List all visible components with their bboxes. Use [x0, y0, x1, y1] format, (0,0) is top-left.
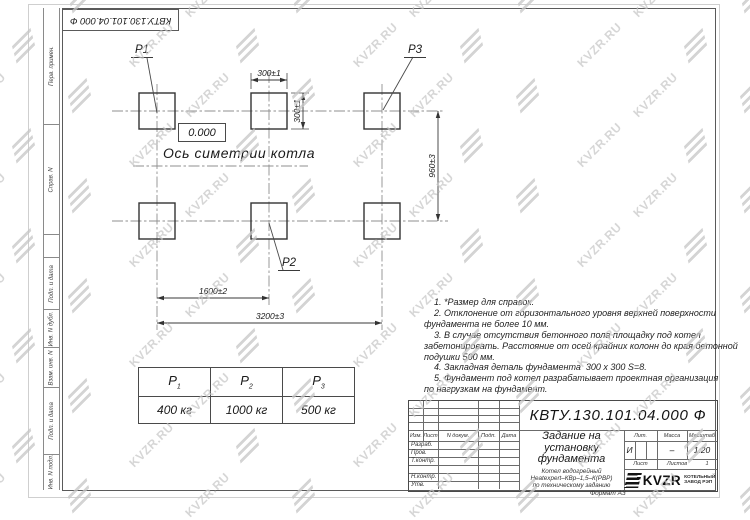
tb-row-tkontr: Т.контр.	[409, 457, 440, 465]
tb-mass-value: –	[657, 441, 687, 459]
tb-row-utv: Утв.	[409, 481, 440, 489]
note-line: 4. Закладная деталь фундамента 300 х 300…	[424, 362, 740, 373]
format-label: Формат А3	[590, 490, 626, 497]
load-table-header-row: P1 P2 P3	[139, 368, 355, 397]
tb-doc-number: КВТУ.130.101.04.000 Ф	[519, 401, 717, 430]
note-line: по нагрузкам на фундамент.	[424, 384, 740, 395]
tb-row-nkontr: Н.контр.	[409, 473, 440, 481]
company-name: КОТЕЛЬНЫЙ ЗАВОД РЭП	[684, 475, 715, 486]
tb-col-ndokum: N докум.	[438, 430, 478, 441]
tb-sheets-label: Листов	[657, 459, 697, 469]
load-table-header-cell: P3	[283, 368, 355, 397]
load-table: P1 P2 P3 400 кг 1000 кг 500 кг	[138, 367, 355, 424]
tb-lit-label: Лит.	[624, 430, 657, 441]
tb-col-podp: Подп.	[478, 430, 499, 441]
tb-row-prov: Пров.	[409, 449, 440, 457]
tb-sheet-label: Лист	[624, 459, 657, 469]
note-line: 3. В случае отсутствия бетонного пола пл…	[424, 330, 740, 341]
tb-col-data: Дата	[499, 430, 519, 441]
tb-row-empty	[409, 465, 440, 473]
center-lines	[112, 72, 448, 330]
note-line: 2. Отклонение от горизонтального уровня …	[424, 308, 740, 319]
tb-sheets-value: 1	[697, 459, 717, 469]
level-mark: 0.000	[188, 127, 216, 139]
tb-col-izm: Изм.	[409, 430, 423, 441]
point-label-p1: P1	[131, 44, 153, 58]
tb-subtitle: Котел водогрейный Heatexpert–КВр–1,5–К(Р…	[519, 467, 624, 490]
tb-col-list: Лист	[423, 430, 438, 441]
load-table-value-cell: 400 кг	[139, 397, 211, 424]
leader-lines	[147, 57, 413, 270]
note-line: фундамента не более 10 мм.	[424, 319, 740, 330]
dim-row-spacing: 960±3	[427, 154, 437, 178]
symmetry-axis-label: Ось симетрии котла	[163, 145, 315, 161]
tb-lit-value: И	[624, 441, 635, 459]
level-mark-box: 0.000	[178, 123, 226, 142]
load-table-header-cell: P2	[211, 368, 283, 397]
dim-full-span: 3200±3	[256, 311, 284, 321]
note-line: 5. Фундамент под котел разрабатывает про…	[424, 373, 740, 384]
kvzr-logo-icon	[624, 473, 642, 488]
note-line: забетонировать. Расстояние от осей крайн…	[424, 341, 740, 352]
dim-pad-height: 300±1	[292, 99, 302, 123]
kvzr-logo-text: KVZR	[643, 473, 681, 488]
load-table-value-cell: 500 кг	[283, 397, 355, 424]
technical-notes: 1. *Размер для справок. 2. Отклонение от…	[424, 297, 740, 395]
tb-row-razrab: Разраб.	[409, 441, 440, 449]
note-line: подушки 500 мм.	[424, 352, 740, 363]
tb-title: Задание на установку фундамента	[519, 431, 624, 466]
point-label-p2: P2	[278, 257, 300, 271]
dim-half-span: 1600±2	[199, 286, 227, 296]
title-block: Изм. Лист N докум. Подп. Дата Разраб. Пр…	[408, 400, 718, 492]
tb-mass-label: Масса	[657, 430, 687, 441]
load-table-value-row: 400 кг 1000 кг 500 кг	[139, 397, 355, 424]
dim-pad-width: 300±1	[257, 68, 281, 78]
company-logo: KVZR КОТЕЛЬНЫЙ ЗАВОД РЭП	[624, 469, 717, 491]
drawing-sheet: { "watermark": { "text": "KVZR.RU" }, "s…	[0, 0, 750, 500]
point-label-p3: P3	[404, 44, 426, 58]
tb-scale-value: 1:20	[687, 441, 717, 459]
tb-scale-label: Масштаб	[687, 430, 717, 441]
load-table-value-cell: 1000 кг	[211, 397, 283, 424]
load-table-header-cell: P1	[139, 368, 211, 397]
note-line: 1. *Размер для справок.	[424, 297, 740, 308]
